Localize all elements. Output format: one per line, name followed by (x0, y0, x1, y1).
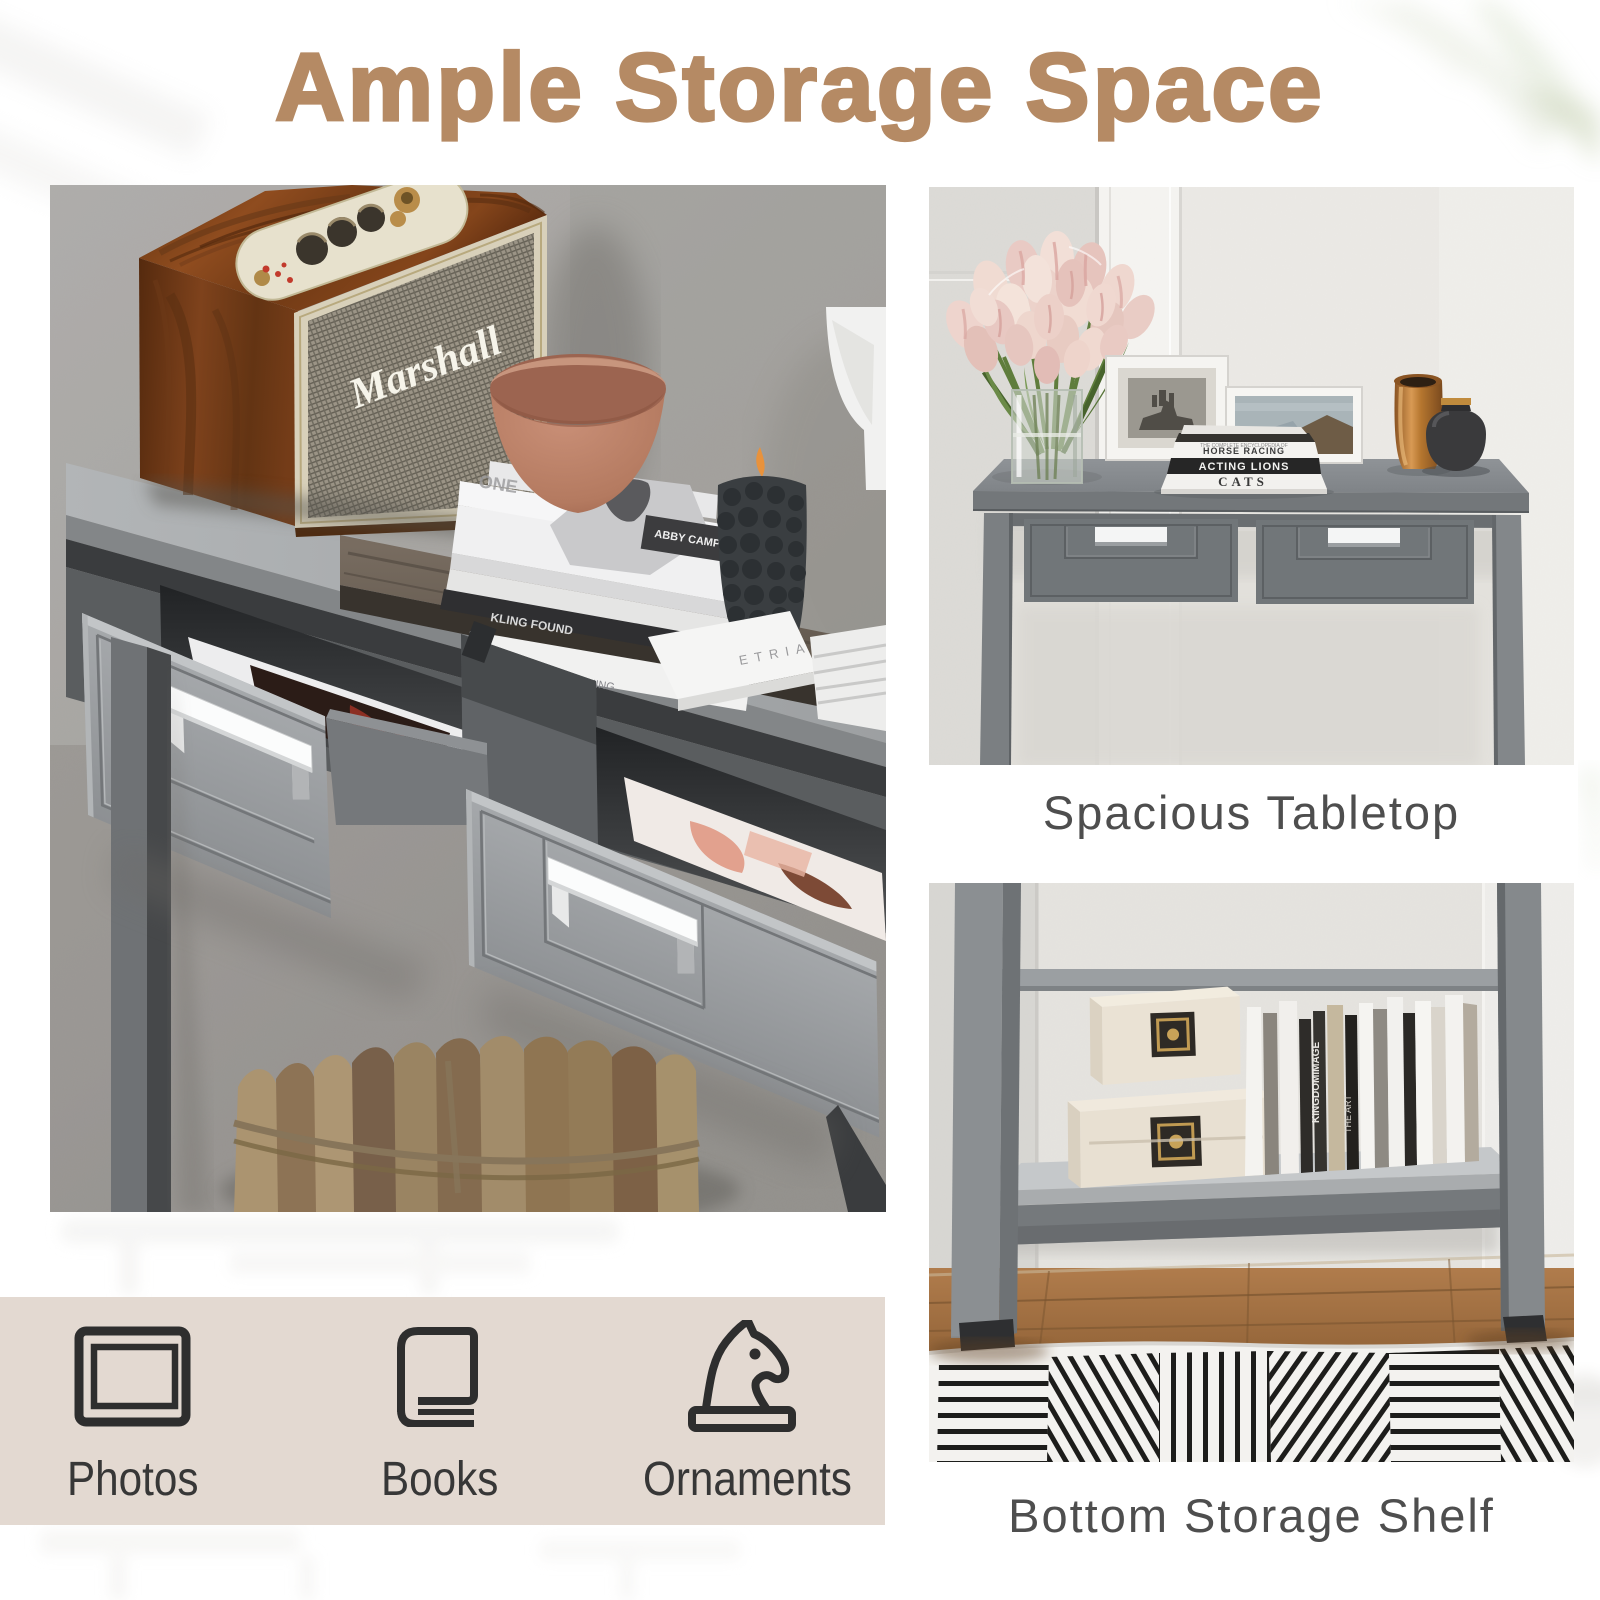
svg-text:THE COMPLETE ENCYCLOPEDIA OF: THE COMPLETE ENCYCLOPEDIA OF (1200, 443, 1288, 449)
svg-text:THE ART: THE ART (1343, 1095, 1353, 1133)
svg-text:KINGDOMIMAGE: KINGDOMIMAGE (1311, 1042, 1322, 1123)
svg-text:ACTING LIONS: ACTING LIONS (1199, 461, 1290, 473)
svg-text:CATS: CATS (1218, 474, 1268, 489)
